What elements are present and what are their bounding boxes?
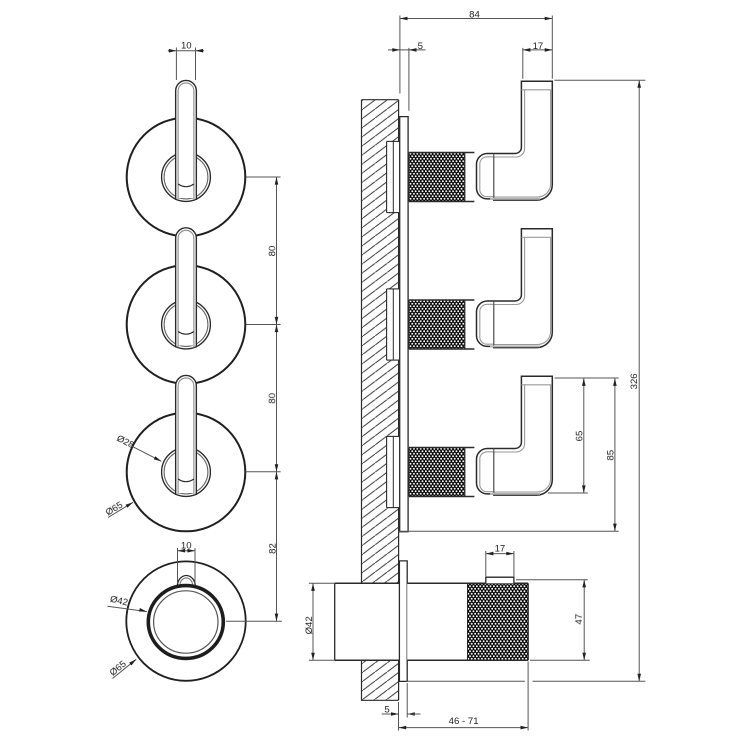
- svg-text:80: 80: [267, 246, 278, 257]
- svg-text:85: 85: [606, 450, 617, 461]
- svg-text:82: 82: [268, 543, 279, 554]
- svg-text:80: 80: [267, 393, 278, 404]
- svg-text:65: 65: [574, 431, 585, 442]
- svg-text:326: 326: [629, 373, 640, 389]
- svg-text:47: 47: [574, 614, 585, 625]
- svg-text:17: 17: [495, 544, 506, 555]
- svg-text:46 - 71: 46 - 71: [449, 716, 479, 727]
- svg-text:10: 10: [181, 40, 192, 51]
- svg-text:Ø42: Ø42: [304, 616, 315, 634]
